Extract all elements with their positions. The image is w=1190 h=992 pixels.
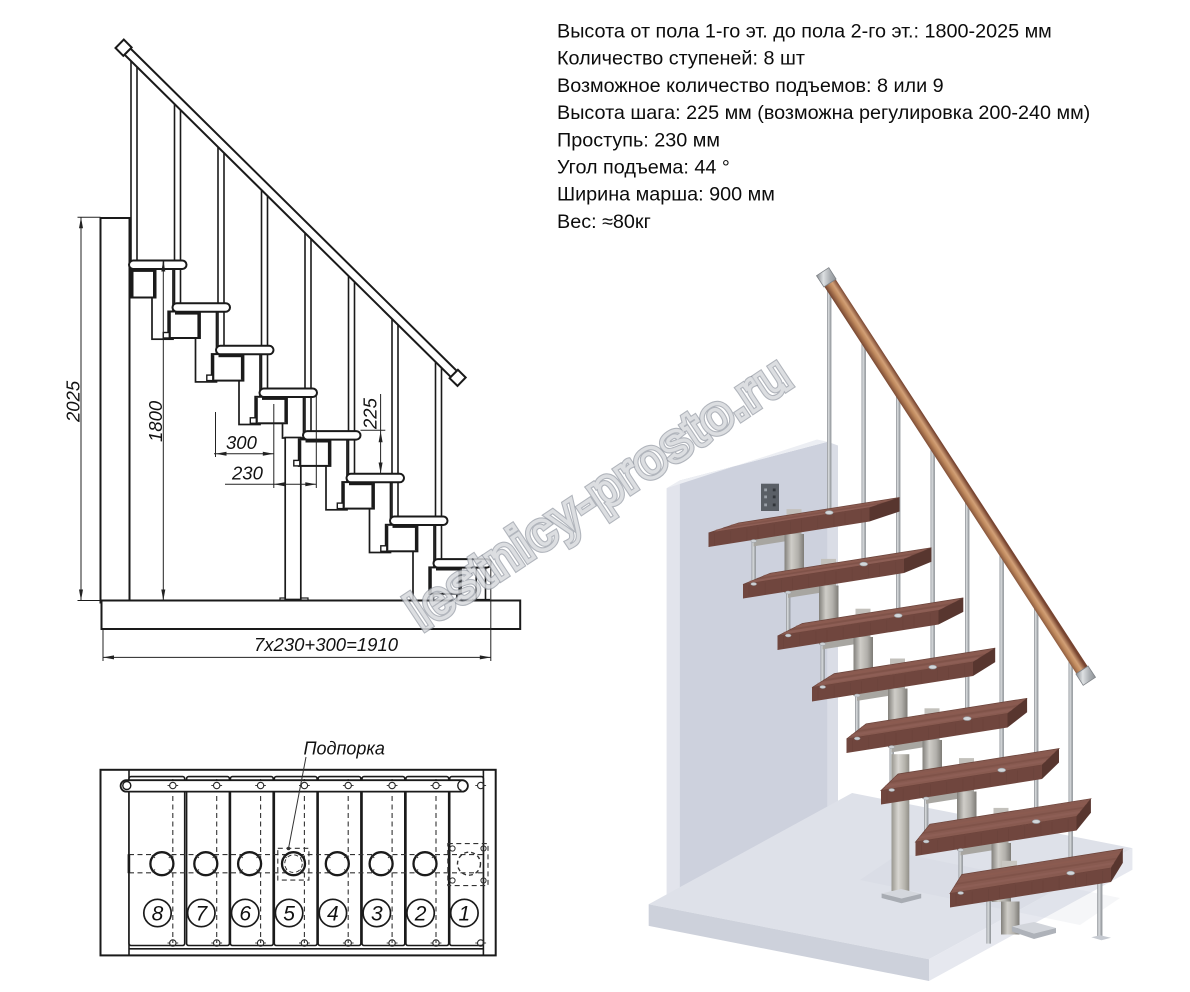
- svg-text:Высота от пола 1-го эт. до пол: Высота от пола 1-го эт. до пола 2-го эт.…: [557, 21, 1052, 43]
- svg-text:Высота шага: 225 мм (возможна: Высота шага: 225 мм (возможна регулировк…: [557, 102, 1090, 124]
- svg-text:Подпорка: Подпорка: [304, 739, 385, 759]
- svg-text:Вес: ≈80кг: Вес: ≈80кг: [557, 211, 651, 233]
- svg-text:225: 225: [360, 397, 381, 430]
- svg-text:1: 1: [459, 903, 471, 926]
- svg-text:Проступь: 230 мм: Проступь: 230 мм: [557, 129, 720, 151]
- svg-text:3: 3: [371, 903, 383, 926]
- svg-text:Угол подъема: 44 °: Угол подъема: 44 °: [557, 157, 730, 179]
- svg-text:2025: 2025: [63, 380, 84, 423]
- svg-text:Количество ступеней: 8 шт: Количество ступеней: 8 шт: [557, 48, 805, 70]
- svg-text:8: 8: [152, 903, 164, 926]
- svg-text:4: 4: [327, 903, 339, 926]
- svg-text:5: 5: [283, 903, 295, 926]
- svg-text:Ширина марша: 900 мм: Ширина марша: 900 мм: [557, 184, 775, 206]
- svg-text:7x230+300=1910: 7x230+300=1910: [254, 634, 399, 655]
- svg-text:300: 300: [226, 432, 258, 453]
- svg-text:Возможное количество подъемов:: Возможное количество подъемов: 8 или 9: [557, 75, 944, 97]
- svg-text:230: 230: [231, 463, 264, 484]
- svg-text:7: 7: [195, 903, 208, 926]
- svg-text:2: 2: [414, 903, 427, 926]
- svg-text:6: 6: [239, 903, 251, 926]
- svg-text:1800: 1800: [145, 400, 166, 442]
